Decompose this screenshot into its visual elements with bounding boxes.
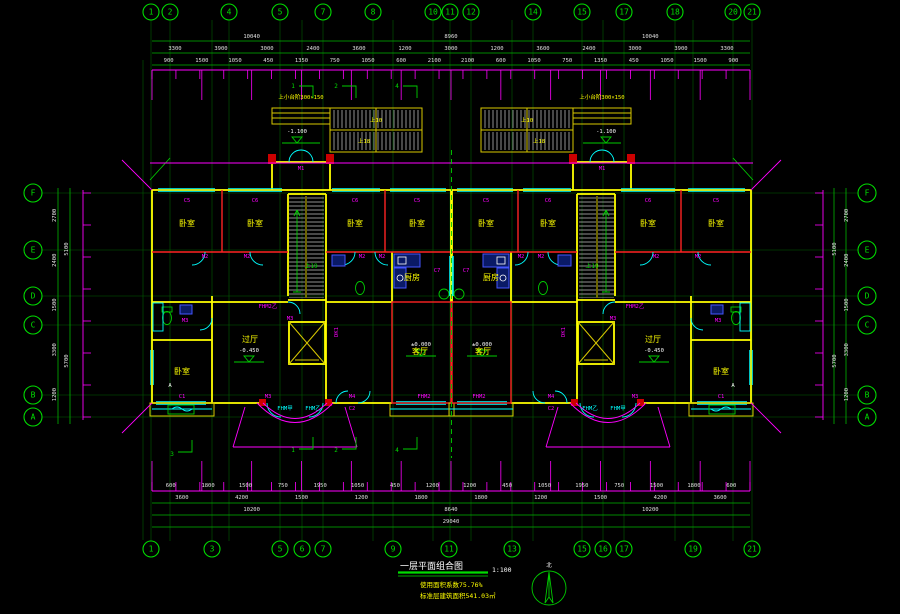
svg-text:D: D — [31, 292, 36, 301]
svg-text:1800: 1800 — [414, 495, 427, 501]
svg-text:3900: 3900 — [674, 46, 687, 52]
svg-text:11: 11 — [444, 545, 454, 554]
svg-text:B: B — [31, 391, 36, 400]
svg-text:6: 6 — [300, 545, 305, 554]
svg-text:20: 20 — [728, 8, 738, 17]
svg-text:卧室: 卧室 — [540, 218, 556, 228]
svg-text:1500: 1500 — [844, 298, 850, 311]
svg-text:C5: C5 — [184, 198, 191, 204]
dim-values-top-row3: 9001500105045013507501050600210021006001… — [164, 58, 739, 64]
svg-text:1200: 1200 — [534, 495, 547, 501]
dim-values-right-col1: 27002400150033001200 — [844, 209, 850, 401]
svg-text:-1.100: -1.100 — [287, 129, 307, 135]
svg-text:1500: 1500 — [650, 483, 663, 489]
svg-text:C6: C6 — [352, 198, 359, 204]
svg-text:8640: 8640 — [444, 507, 457, 513]
axis-bubbles-right: F E D C B A — [858, 184, 876, 426]
svg-text:卧室: 卧室 — [347, 218, 363, 228]
svg-text:4: 4 — [395, 83, 399, 90]
svg-text:1500: 1500 — [594, 495, 607, 501]
svg-text:450: 450 — [629, 58, 639, 64]
svg-text:750: 750 — [562, 58, 572, 64]
svg-text:7: 7 — [321, 545, 326, 554]
svg-text:1500: 1500 — [295, 495, 308, 501]
svg-text:±0.000: ±0.000 — [472, 342, 492, 348]
svg-text:M2: M2 — [379, 254, 386, 260]
axis-bubbles-left: F E D C B A — [24, 184, 42, 426]
dim-ticks-left — [83, 193, 91, 417]
svg-text:卧室: 卧室 — [409, 218, 425, 228]
svg-text:C: C — [865, 321, 870, 330]
svg-text:1500: 1500 — [694, 58, 707, 64]
svg-text:600: 600 — [166, 483, 176, 489]
svg-text:8: 8 — [371, 8, 376, 17]
drawing-scale: 1:100 — [492, 566, 512, 574]
svg-text:2: 2 — [334, 83, 338, 90]
area-note-2: 标准层建筑面积541.03㎡ — [420, 591, 496, 600]
svg-text:C2: C2 — [349, 406, 356, 412]
svg-text:1500: 1500 — [52, 298, 58, 311]
svg-text:FHM2: FHM2 — [472, 394, 485, 400]
axis-bubbles-bottom: 1 3 5 6 7 9 11 13 15 16 17 19 21 — [143, 541, 760, 557]
svg-text:1350: 1350 — [295, 58, 308, 64]
svg-text:600: 600 — [496, 58, 506, 64]
dim-witness-top — [152, 70, 750, 100]
svg-text:14: 14 — [528, 8, 538, 17]
svg-text:1500: 1500 — [195, 58, 208, 64]
svg-text:2700: 2700 — [52, 209, 58, 222]
svg-text:卧室: 卧室 — [713, 366, 729, 376]
svg-text:FHM2乙: FHM2乙 — [259, 303, 278, 310]
svg-text:1200: 1200 — [844, 388, 850, 401]
svg-text:F: F — [865, 189, 870, 198]
svg-text:1050: 1050 — [538, 483, 551, 489]
svg-text:1950: 1950 — [314, 483, 327, 489]
svg-text:E: E — [31, 246, 36, 255]
svg-text:3600: 3600 — [352, 46, 365, 52]
svg-text:C7: C7 — [463, 268, 470, 274]
svg-text:E: E — [865, 246, 870, 255]
svg-text:750: 750 — [278, 483, 288, 489]
svg-text:1050: 1050 — [660, 58, 673, 64]
cad-viewport[interactable]: 10040896010040 3300390030002400360012003… — [0, 0, 900, 614]
dim-values-bottom-row2: 3600420015001200180018001200150042003600 — [175, 495, 726, 501]
svg-text:1050: 1050 — [351, 483, 364, 489]
svg-text:上10: 上10 — [521, 116, 533, 124]
svg-text:过厅: 过厅 — [242, 334, 258, 344]
svg-text:17: 17 — [619, 545, 629, 554]
svg-text:17: 17 — [619, 8, 629, 17]
svg-text:1: 1 — [291, 447, 295, 454]
svg-text:C5: C5 — [713, 198, 720, 204]
svg-text:1950: 1950 — [575, 483, 588, 489]
svg-text:过厅: 过厅 — [645, 334, 661, 344]
svg-text:C: C — [31, 321, 36, 330]
svg-text:13: 13 — [507, 545, 517, 554]
svg-text:-0.450: -0.450 — [644, 348, 664, 354]
svg-text:1200: 1200 — [52, 388, 58, 401]
svg-text:1500: 1500 — [239, 483, 252, 489]
svg-text:5700: 5700 — [832, 354, 838, 367]
svg-text:1050: 1050 — [361, 58, 374, 64]
svg-text:M2: M2 — [538, 254, 545, 260]
svg-text:1200: 1200 — [490, 46, 503, 52]
dim-values-bottom-row3: 10200864010200 — [243, 507, 658, 513]
svg-text:DK1: DK1 — [334, 327, 340, 337]
svg-text:C5: C5 — [414, 198, 421, 204]
svg-text:1800: 1800 — [687, 483, 700, 489]
svg-text:FHM2乙: FHM2乙 — [626, 303, 645, 310]
svg-text:卧室: 卧室 — [247, 218, 263, 228]
svg-text:2400: 2400 — [52, 254, 58, 267]
svg-text:1050: 1050 — [228, 58, 241, 64]
north-arrow: 北 — [532, 561, 566, 605]
svg-text:1200: 1200 — [426, 483, 439, 489]
svg-text:2: 2 — [168, 8, 173, 17]
svg-text:A: A — [31, 413, 36, 422]
svg-text:FHM乙: FHM乙 — [305, 405, 321, 412]
svg-text:750: 750 — [330, 58, 340, 64]
svg-text:M2: M2 — [695, 254, 702, 260]
svg-text:1200: 1200 — [398, 46, 411, 52]
svg-text:-1.100: -1.100 — [596, 129, 616, 135]
svg-text:D: D — [865, 292, 870, 301]
svg-text:卧室: 卧室 — [708, 218, 724, 228]
svg-text:-0.450: -0.450 — [239, 348, 259, 354]
svg-text:M3: M3 — [715, 318, 722, 324]
svg-text:3000: 3000 — [260, 46, 273, 52]
svg-text:上小台阶300×150: 上小台阶300×150 — [579, 93, 624, 101]
svg-text:15: 15 — [577, 8, 587, 17]
svg-text:B: B — [865, 391, 870, 400]
svg-text:3300: 3300 — [168, 46, 181, 52]
svg-text:10200: 10200 — [642, 507, 659, 513]
svg-text:C5: C5 — [483, 198, 490, 204]
svg-text:上18: 上18 — [533, 137, 545, 145]
dim-values-right-col2: 51005700 — [832, 242, 838, 367]
svg-text:FHM2: FHM2 — [417, 394, 430, 400]
svg-text:18: 18 — [670, 8, 680, 17]
svg-text:5: 5 — [278, 545, 283, 554]
svg-text:16: 16 — [598, 545, 608, 554]
svg-text:3: 3 — [170, 451, 174, 458]
svg-text:5100: 5100 — [832, 242, 838, 255]
svg-text:M2: M2 — [359, 254, 366, 260]
svg-text:1800: 1800 — [474, 495, 487, 501]
area-note-1: 使用面积系数75.76% — [420, 580, 483, 589]
svg-text:8960: 8960 — [444, 34, 457, 40]
svg-text:3600: 3600 — [175, 495, 188, 501]
svg-text:900: 900 — [728, 58, 738, 64]
svg-text:12: 12 — [466, 8, 476, 17]
svg-text:10040: 10040 — [243, 34, 260, 40]
svg-text:上19: 上19 — [304, 262, 318, 270]
svg-text:M3: M3 — [265, 394, 272, 400]
dim-values-left-col1: 27002400150033001200 — [52, 209, 58, 401]
svg-text:M2: M2 — [653, 254, 660, 260]
svg-text:2: 2 — [334, 447, 338, 454]
svg-text:10040: 10040 — [642, 34, 659, 40]
svg-text:卧室: 卧室 — [174, 366, 190, 376]
svg-text:2400: 2400 — [582, 46, 595, 52]
svg-text:3300: 3300 — [52, 343, 58, 356]
svg-text:1800: 1800 — [201, 483, 214, 489]
svg-text:3: 3 — [210, 545, 215, 554]
svg-text:15: 15 — [577, 545, 587, 554]
svg-text:M2: M2 — [518, 254, 525, 260]
svg-text:±0.000: ±0.000 — [411, 342, 431, 348]
svg-text:厨房: 厨房 — [404, 272, 420, 282]
svg-text:450: 450 — [502, 483, 512, 489]
svg-text:3900: 3900 — [214, 46, 227, 52]
svg-text:卧室: 卧室 — [640, 218, 656, 228]
svg-text:5100: 5100 — [64, 242, 70, 255]
svg-text:C2: C2 — [548, 406, 555, 412]
svg-text:C7: C7 — [434, 268, 441, 274]
svg-text:1350: 1350 — [594, 58, 607, 64]
svg-text:1: 1 — [149, 545, 154, 554]
svg-text:M1: M1 — [599, 166, 606, 172]
svg-text:2700: 2700 — [844, 209, 850, 222]
svg-text:M3: M3 — [632, 394, 639, 400]
svg-text:900: 900 — [164, 58, 174, 64]
roof-outline — [150, 150, 753, 458]
svg-text:上小台阶300×150: 上小台阶300×150 — [278, 93, 323, 101]
svg-text:1200: 1200 — [463, 483, 476, 489]
svg-text:5: 5 — [278, 8, 283, 17]
north-label: 北 — [546, 561, 552, 569]
svg-text:10200: 10200 — [243, 507, 260, 513]
svg-text:M2: M2 — [202, 254, 209, 260]
svg-text:600: 600 — [396, 58, 406, 64]
svg-text:600: 600 — [726, 483, 736, 489]
axis-bubbles-top: 1 2 4 5 7 8 10 11 12 14 15 17 18 20 21 — [143, 4, 760, 20]
svg-text:卧室: 卧室 — [179, 218, 195, 228]
svg-text:2400: 2400 — [844, 254, 850, 267]
svg-text:29040: 29040 — [443, 519, 460, 525]
svg-text:C6: C6 — [545, 198, 552, 204]
svg-text:A: A — [865, 413, 870, 422]
svg-text:2100: 2100 — [428, 58, 441, 64]
svg-text:M1: M1 — [298, 166, 305, 172]
svg-text:卧室: 卧室 — [478, 218, 494, 228]
svg-text:厨房: 厨房 — [483, 272, 499, 282]
svg-text:21: 21 — [747, 8, 757, 17]
svg-text:21: 21 — [747, 545, 757, 554]
svg-text:DK1: DK1 — [561, 327, 567, 337]
svg-text:上18: 上18 — [358, 137, 370, 145]
svg-text:4200: 4200 — [654, 495, 667, 501]
svg-text:FHM甲: FHM甲 — [610, 405, 625, 412]
svg-text:F: F — [31, 189, 36, 198]
dim-values-left-col2: 51005700 — [64, 242, 70, 367]
svg-text:3600: 3600 — [536, 46, 549, 52]
svg-text:上10: 上10 — [370, 116, 382, 124]
title-block: 一层平面组合图 1:100 使用面积系数75.76% 标准层建筑面积541.03… — [398, 560, 512, 600]
svg-text:450: 450 — [390, 483, 400, 489]
svg-text:4200: 4200 — [235, 495, 248, 501]
svg-text:C1: C1 — [718, 394, 725, 400]
svg-text:M3: M3 — [287, 316, 294, 322]
svg-text:7: 7 — [321, 8, 326, 17]
svg-text:450: 450 — [263, 58, 273, 64]
dim-values-bottom-row4: 29040 — [443, 519, 460, 525]
svg-text:上19: 上19 — [585, 262, 599, 270]
svg-text:2400: 2400 — [306, 46, 319, 52]
svg-text:FHM乙: FHM乙 — [582, 405, 598, 412]
svg-text:M4: M4 — [349, 394, 356, 400]
svg-text:FHM甲: FHM甲 — [277, 405, 292, 412]
svg-text:M4: M4 — [548, 394, 555, 400]
svg-text:9: 9 — [391, 545, 396, 554]
svg-text:3300: 3300 — [720, 46, 733, 52]
svg-text:750: 750 — [614, 483, 624, 489]
svg-text:C1: C1 — [179, 394, 186, 400]
svg-text:M2: M2 — [244, 254, 251, 260]
svg-text:A: A — [168, 383, 172, 389]
floor-plan-drawing: 10040896010040 3300390030002400360012003… — [0, 0, 900, 614]
svg-text:11: 11 — [445, 8, 455, 17]
svg-text:4: 4 — [227, 8, 232, 17]
svg-text:3600: 3600 — [713, 495, 726, 501]
dim-values-top-row1: 10040896010040 — [243, 34, 658, 40]
svg-text:4: 4 — [395, 447, 399, 454]
drawing-title: 一层平面组合图 — [400, 560, 463, 572]
dim-ticks-right — [815, 193, 823, 417]
svg-text:C6: C6 — [252, 198, 259, 204]
svg-text:A: A — [731, 383, 735, 389]
svg-text:2100: 2100 — [461, 58, 474, 64]
svg-text:5700: 5700 — [64, 354, 70, 367]
svg-text:1: 1 — [291, 83, 295, 90]
svg-text:10: 10 — [428, 8, 438, 17]
svg-text:19: 19 — [688, 545, 698, 554]
svg-text:1: 1 — [149, 8, 154, 17]
svg-text:3300: 3300 — [844, 343, 850, 356]
svg-text:3000: 3000 — [628, 46, 641, 52]
svg-text:1200: 1200 — [355, 495, 368, 501]
dim-values-top-row2: 3300390030002400360012003000120036002400… — [168, 46, 733, 52]
svg-text:1050: 1050 — [527, 58, 540, 64]
svg-text:M3: M3 — [182, 318, 189, 324]
svg-text:3000: 3000 — [444, 46, 457, 52]
svg-text:C6: C6 — [645, 198, 652, 204]
svg-text:M3: M3 — [610, 316, 617, 322]
